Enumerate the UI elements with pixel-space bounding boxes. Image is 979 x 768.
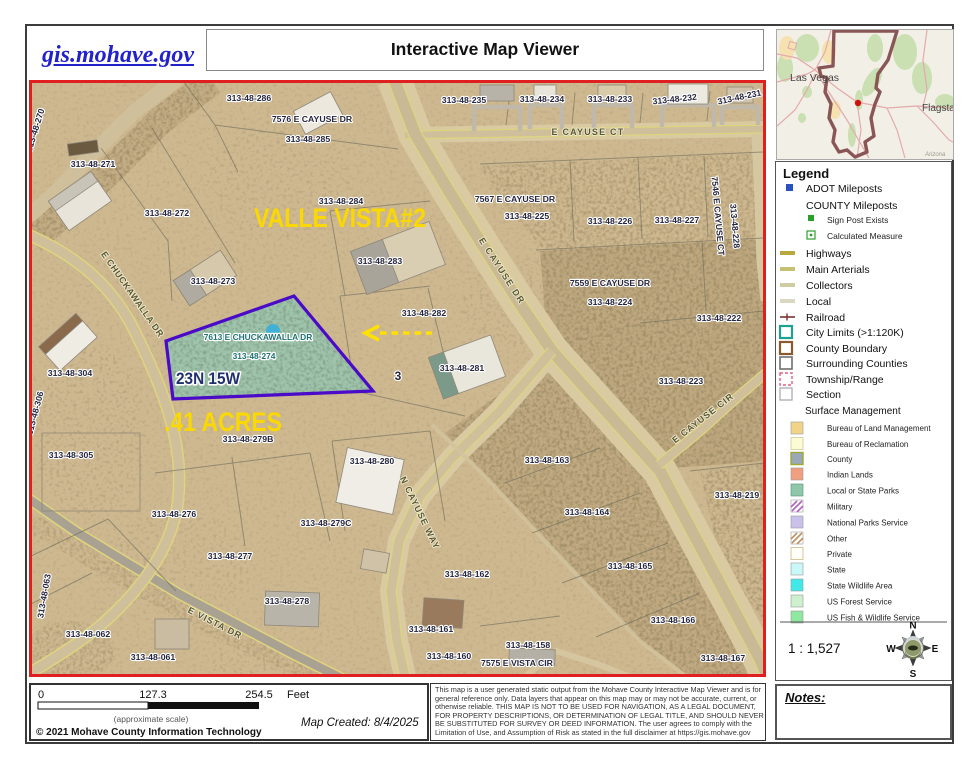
svg-text:313-48-061: 313-48-061 [131,652,176,662]
svg-text:Arizona: Arizona [924,152,946,158]
svg-text:313-48-278: 313-48-278 [265,596,310,606]
svg-text:Bureau of Reclamation: Bureau of Reclamation [827,440,908,449]
svg-text:313-48-160: 313-48-160 [427,651,472,661]
svg-text:313-48-225: 313-48-225 [505,211,550,221]
svg-text:313-48-276: 313-48-276 [152,509,197,519]
svg-text:.41 ACRES: .41 ACRES [164,407,282,437]
svg-text:313-48-235: 313-48-235 [442,95,487,105]
svg-text:313-48-167: 313-48-167 [701,653,746,663]
svg-text:7613 E CHUCKAWALLA DR: 7613 E CHUCKAWALLA DR [204,332,313,342]
svg-text:Collectors: Collectors [806,280,853,292]
svg-text:Indian Lands: Indian Lands [827,471,873,480]
svg-text:313-48-272: 313-48-272 [145,208,190,218]
svg-text:313-48-158: 313-48-158 [506,640,551,650]
svg-text:313-48-226: 313-48-226 [588,216,633,226]
svg-text:313-48-277: 313-48-277 [208,551,253,561]
svg-text:313-48-222: 313-48-222 [697,313,742,323]
svg-text:313-48-163: 313-48-163 [525,455,570,465]
svg-text:313-48-233: 313-48-233 [588,94,633,104]
svg-text:US Forest Service: US Forest Service [827,598,892,607]
svg-text:Las Vegas: Las Vegas [790,72,839,84]
svg-text:VALLE VISTA#2: VALLE VISTA#2 [254,203,426,233]
svg-text:County Boundary: County Boundary [806,343,888,355]
svg-text:23N 15W: 23N 15W [176,370,240,388]
svg-text:S: S [910,669,917,680]
svg-text:US Fish & Wildlife Service: US Fish & Wildlife Service [827,614,920,623]
svg-text:City Limits (>1:120K): City Limits (>1:120K) [806,327,904,339]
svg-text:Main Arterials: Main Arterials [806,264,870,276]
svg-text:7575 E VISTA CIR: 7575 E VISTA CIR [481,658,554,668]
svg-text:313-48-285: 313-48-285 [286,134,331,144]
svg-text:County: County [827,455,852,464]
svg-text:N: N [909,621,916,632]
svg-text:COUNTY Mileposts: COUNTY Mileposts [806,200,897,212]
svg-text:313-48-162: 313-48-162 [445,569,490,579]
svg-text:254.5: 254.5 [245,689,273,701]
svg-text:313-48-286: 313-48-286 [227,93,272,103]
svg-text:313-48-281: 313-48-281 [440,363,485,373]
svg-text:313-48-279C: 313-48-279C [301,518,352,528]
svg-text:0: 0 [38,689,44,701]
svg-text:Calculated Measure: Calculated Measure [827,231,903,241]
svg-text:313-48-062: 313-48-062 [66,629,111,639]
svg-text:313-48-164: 313-48-164 [565,507,610,517]
svg-text:313-48-223: 313-48-223 [659,376,704,386]
svg-text:Highways: Highways [806,248,852,260]
svg-text:Railroad: Railroad [806,312,845,324]
svg-text:State Wildlife Area: State Wildlife Area [827,582,893,591]
svg-text:Local: Local [806,296,831,308]
svg-text:313-48-274: 313-48-274 [233,351,276,361]
svg-text:7576 E CAYUSE DR: 7576 E CAYUSE DR [272,114,353,124]
svg-text:Map Created: 8/4/2025: Map Created: 8/4/2025 [301,717,419,729]
svg-text:Surface Management: Surface Management [805,406,901,417]
svg-text:Feet: Feet [287,689,309,701]
svg-text:National Parks Service: National Parks Service [827,519,908,528]
svg-text:Section: Section [806,389,841,401]
svg-text:Surrounding Counties: Surrounding Counties [806,358,908,370]
svg-text:W: W [886,644,896,655]
svg-text:313-48-234: 313-48-234 [520,94,565,104]
svg-text:1 : 1,527: 1 : 1,527 [788,641,841,656]
svg-text:3: 3 [395,369,402,383]
svg-text:7559 E CAYUSE DR: 7559 E CAYUSE DR [570,278,651,288]
svg-text:Bureau of Land Management: Bureau of Land Management [827,424,931,433]
svg-text:313-48-283: 313-48-283 [358,256,403,266]
svg-text:313-48-224: 313-48-224 [588,297,633,307]
svg-text:E: E [932,644,939,655]
svg-text:313-48-280: 313-48-280 [350,456,395,466]
svg-text:Other: Other [827,535,847,544]
svg-text:313-48-271: 313-48-271 [71,159,116,169]
svg-text:313-48-282: 313-48-282 [402,308,447,318]
svg-text:313-48-219: 313-48-219 [715,490,760,500]
svg-text:E CAYUSE CT: E CAYUSE CT [552,127,625,137]
svg-text:(approximate scale): (approximate scale) [114,714,189,724]
svg-text:313-48-304: 313-48-304 [48,368,93,378]
svg-text:State: State [827,566,846,575]
svg-text:© 2021 Mohave County Informati: © 2021 Mohave County Information Technol… [36,727,262,738]
svg-text:Sign Post Exists: Sign Post Exists [827,215,888,225]
svg-text:313-48-166: 313-48-166 [651,615,696,625]
svg-text:7567 E CAYUSE DR: 7567 E CAYUSE DR [475,194,556,204]
svg-text:313-48-161: 313-48-161 [409,624,454,634]
svg-text:313-48-165: 313-48-165 [608,561,653,571]
svg-text:Private: Private [827,550,852,559]
svg-text:ADOT Mileposts: ADOT Mileposts [806,183,882,195]
svg-text:313-48-227: 313-48-227 [655,215,700,225]
svg-text:313-48-305: 313-48-305 [49,450,94,460]
svg-text:Local or State Parks: Local or State Parks [827,487,899,496]
svg-text:Township/Range: Township/Range [806,374,884,386]
svg-text:313-48-273: 313-48-273 [191,276,236,286]
svg-text:Flagsta: Flagsta [922,103,953,114]
svg-text:Military: Military [827,503,852,512]
svg-text:127.3: 127.3 [139,689,167,701]
svg-text:Legend: Legend [783,166,829,181]
